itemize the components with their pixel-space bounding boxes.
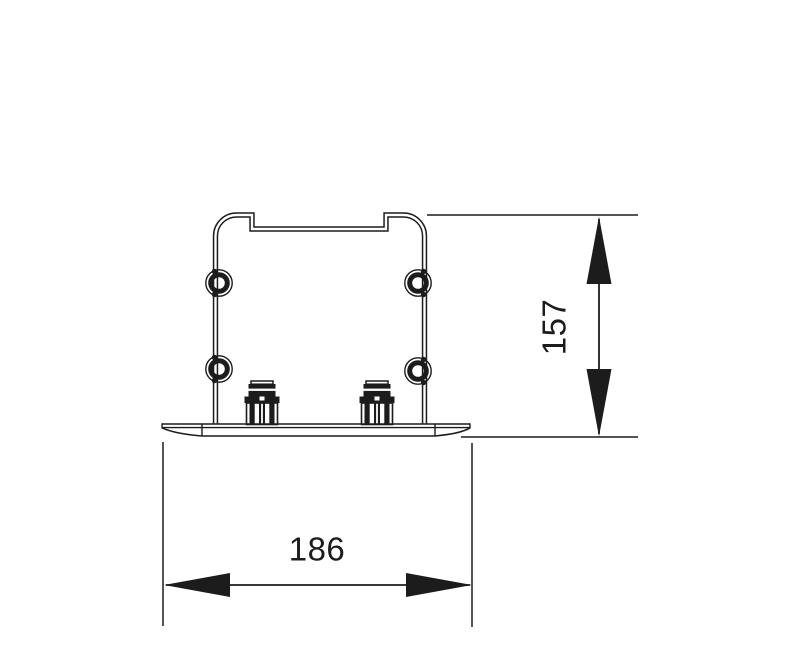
terminal-cap-rim — [251, 381, 273, 384]
clip-top-right — [405, 269, 431, 297]
clip-washer — [211, 275, 228, 292]
height-dimension-label: 157 — [536, 299, 573, 356]
clip-washer — [211, 361, 228, 378]
arrow-left-icon — [164, 573, 230, 597]
flange-right-taper — [435, 428, 470, 436]
clip-nub — [421, 269, 426, 274]
clip-nub — [212, 378, 217, 383]
clip-bottom-right — [405, 357, 431, 385]
dimension-drawing: 157 186 — [0, 0, 800, 650]
clip-nub — [212, 355, 217, 360]
terminal-cap-upper — [364, 384, 391, 389]
terminal-body-bar — [269, 404, 274, 425]
clip-nub — [421, 357, 426, 362]
terminal-body-bar — [250, 404, 255, 425]
clip-top-left — [206, 269, 232, 297]
clip-nub — [421, 292, 426, 297]
terminal-cap-upper — [249, 384, 276, 389]
frame-outline-outer — [216, 215, 425, 424]
terminal-shoulder-slot — [375, 397, 380, 401]
arrow-right-icon — [406, 573, 472, 597]
arrow-up-icon — [587, 217, 612, 285]
terminal-cap-lower — [364, 391, 391, 397]
terminal-cap-rim — [366, 381, 388, 384]
terminal-shoulder-slot — [260, 397, 265, 401]
clip-nub — [212, 269, 217, 274]
bracket-frame — [216, 215, 425, 424]
frame-outline-inner — [216, 215, 425, 424]
arrow-down-icon — [587, 369, 612, 437]
terminal-left — [245, 381, 280, 425]
terminal-body-bar — [365, 404, 370, 425]
clip-washer — [410, 275, 427, 292]
dimension-height: 157 — [427, 215, 638, 437]
flange-left-taper — [162, 428, 202, 436]
dimension-width: 186 — [163, 442, 472, 627]
mounting-flange — [162, 423, 470, 436]
technical-drawing-canvas: 157 186 — [0, 0, 800, 650]
clip-washer — [410, 363, 427, 380]
terminal-body-bar — [384, 404, 389, 425]
clip-nub — [212, 292, 217, 297]
clip-nub — [421, 380, 426, 385]
terminal-body-slit — [378, 404, 380, 425]
terminal-right — [360, 381, 395, 425]
width-dimension-label: 186 — [289, 531, 346, 568]
terminal-cap-lower — [249, 391, 276, 397]
terminal-body-slit — [263, 404, 265, 425]
terminal-body-slit — [259, 404, 261, 425]
clip-bottom-left — [206, 355, 232, 383]
terminal-body-slit — [374, 404, 376, 425]
